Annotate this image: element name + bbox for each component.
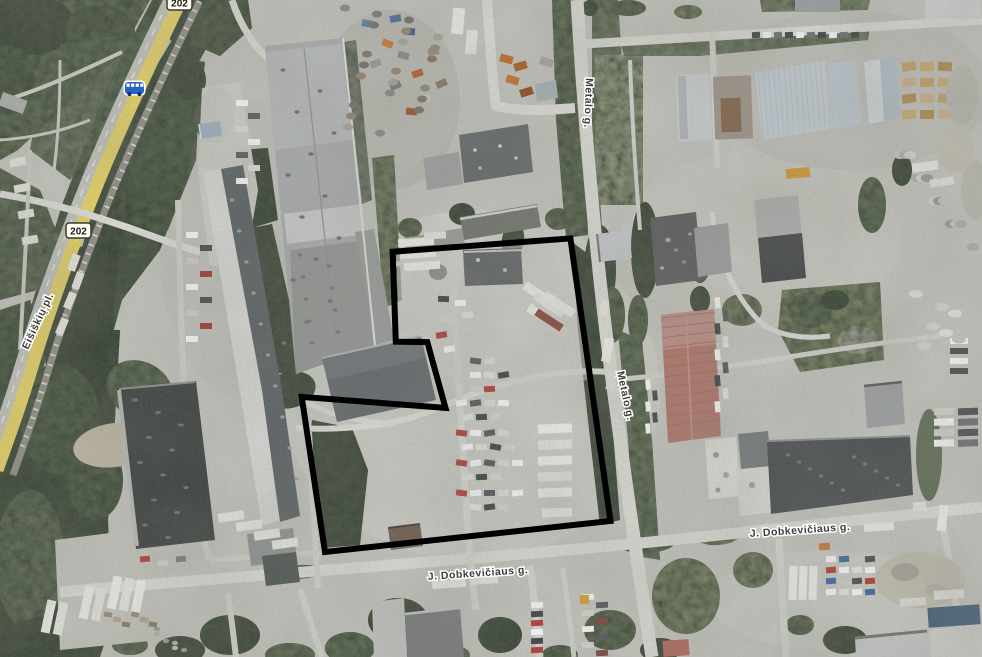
svg-text:Metalo g.: Metalo g. <box>581 78 595 128</box>
svg-text:202: 202 <box>70 227 87 238</box>
svg-text:202: 202 <box>171 0 188 10</box>
